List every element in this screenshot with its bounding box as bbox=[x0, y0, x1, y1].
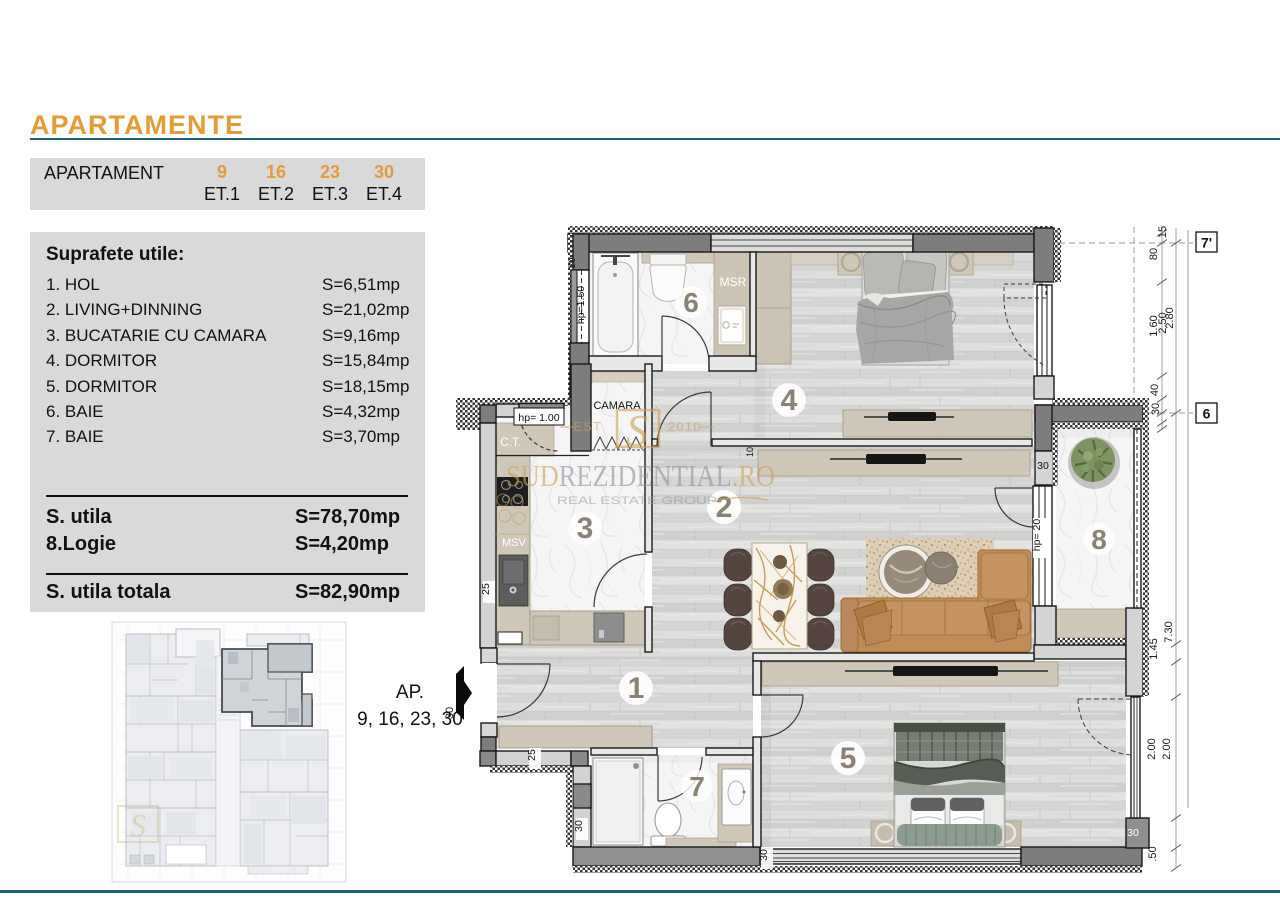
svg-text:25: 25 bbox=[526, 749, 538, 761]
svg-text:30: 30 bbox=[1150, 403, 1162, 415]
svg-text:2: 2 bbox=[716, 491, 733, 524]
svg-text:MSV: MSV bbox=[502, 537, 527, 549]
svg-text:30: 30 bbox=[1037, 460, 1049, 472]
svg-text:4: 4 bbox=[781, 384, 798, 417]
svg-text:hp= 1.00: hp= 1.00 bbox=[518, 412, 559, 424]
svg-text:6: 6 bbox=[1203, 406, 1211, 422]
svg-text:2.00: 2.00 bbox=[1161, 738, 1173, 759]
svg-text:2.00: 2.00 bbox=[1146, 738, 1158, 759]
svg-text:hp=1.50: hp=1.50 bbox=[575, 286, 587, 324]
svg-text:C.T.: C.T. bbox=[500, 435, 521, 449]
svg-text:10: 10 bbox=[745, 447, 755, 457]
svg-text:hp= 20: hp= 20 bbox=[1031, 519, 1043, 552]
svg-text:8: 8 bbox=[1091, 524, 1107, 555]
svg-text:80: 80 bbox=[1148, 248, 1160, 260]
svg-text:30: 30 bbox=[1127, 827, 1139, 839]
svg-text:7.30: 7.30 bbox=[1163, 621, 1175, 642]
svg-text:EST: EST bbox=[574, 420, 603, 434]
svg-text:30: 30 bbox=[758, 849, 770, 861]
svg-text:1: 1 bbox=[628, 672, 645, 705]
svg-text:2010: 2010 bbox=[668, 420, 702, 434]
svg-text:.50: .50 bbox=[1147, 846, 1159, 861]
svg-text:REAL ESTATE GROUP: REAL ESTATE GROUP bbox=[557, 495, 717, 507]
svg-text:5: 5 bbox=[840, 742, 857, 775]
svg-text:1.45: 1.45 bbox=[1148, 638, 1160, 659]
svg-text:S: S bbox=[626, 406, 648, 455]
svg-text:30: 30 bbox=[573, 820, 585, 832]
svg-text:2.80: 2.80 bbox=[1164, 307, 1176, 328]
svg-text:7: 7 bbox=[689, 771, 705, 802]
svg-text:3: 3 bbox=[577, 512, 594, 545]
svg-text:MSR: MSR bbox=[720, 275, 747, 289]
svg-text:7': 7' bbox=[1201, 235, 1212, 251]
svg-text:30: 30 bbox=[444, 707, 456, 719]
svg-text:15: 15 bbox=[1157, 226, 1169, 238]
svg-text:40: 40 bbox=[1149, 384, 1161, 396]
svg-text:S: S bbox=[130, 807, 146, 843]
svg-text:SUDREZIDENTIAL.RO: SUDREZIDENTIAL.RO bbox=[506, 458, 775, 493]
svg-text:20: 20 bbox=[567, 258, 578, 269]
svg-text:6: 6 bbox=[683, 287, 699, 318]
svg-text:25: 25 bbox=[480, 583, 492, 595]
